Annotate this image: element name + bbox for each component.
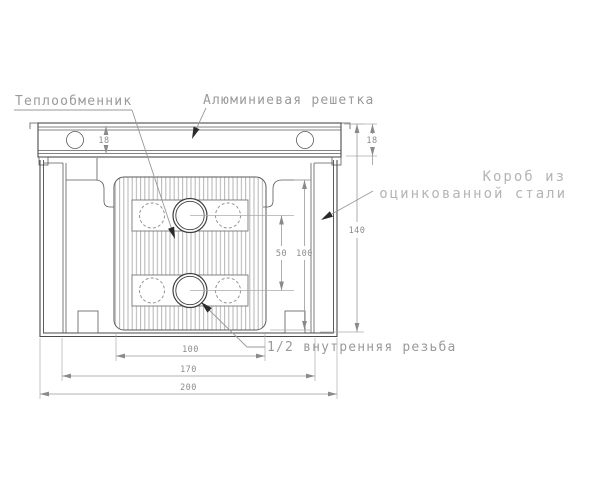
grille-lip-left (30, 123, 38, 129)
dim-grille-height-right: 18 (366, 136, 377, 146)
pipe-hidden-bottom-left (140, 278, 165, 303)
heat-exchanger-block (114, 177, 294, 330)
annotations: Теплообменник Алюминиевая решетка Короб … (14, 93, 567, 355)
grille-hole-left (67, 132, 84, 149)
label-box-material-line1: Короб из (483, 169, 566, 185)
dim-grille-height-left: 18 (98, 136, 109, 146)
label-aluminium-grille: Алюминиевая решетка (203, 93, 375, 108)
aluminium-grille (30, 123, 350, 165)
dim-exchanger-width: 100 (182, 345, 199, 355)
grille-hole-right (297, 132, 314, 149)
box-foot-left (78, 311, 98, 333)
drawing-canvas: 18 18 50 100 140 (0, 0, 600, 480)
box-step-left (66, 180, 114, 207)
leader-arrow-box (319, 211, 333, 223)
dim-pipe-spacing: 50 (276, 249, 287, 259)
label-thread: 1/2 внутренняя резьба (267, 340, 457, 355)
leader-arrow-grille (189, 127, 199, 141)
dim-total-height: 140 (349, 226, 366, 236)
convector-cross-section-drawing: 18 18 50 100 140 (0, 0, 600, 480)
label-box-material-line2: оцинкованной стали (379, 186, 567, 202)
pipe-hidden-top-left (140, 203, 165, 228)
label-heat-exchanger: Теплообменник (15, 94, 132, 109)
dim-overall-width: 200 (180, 383, 197, 393)
dim-exchanger-height: 100 (296, 249, 313, 259)
dim-inner-width: 170 (180, 365, 197, 375)
